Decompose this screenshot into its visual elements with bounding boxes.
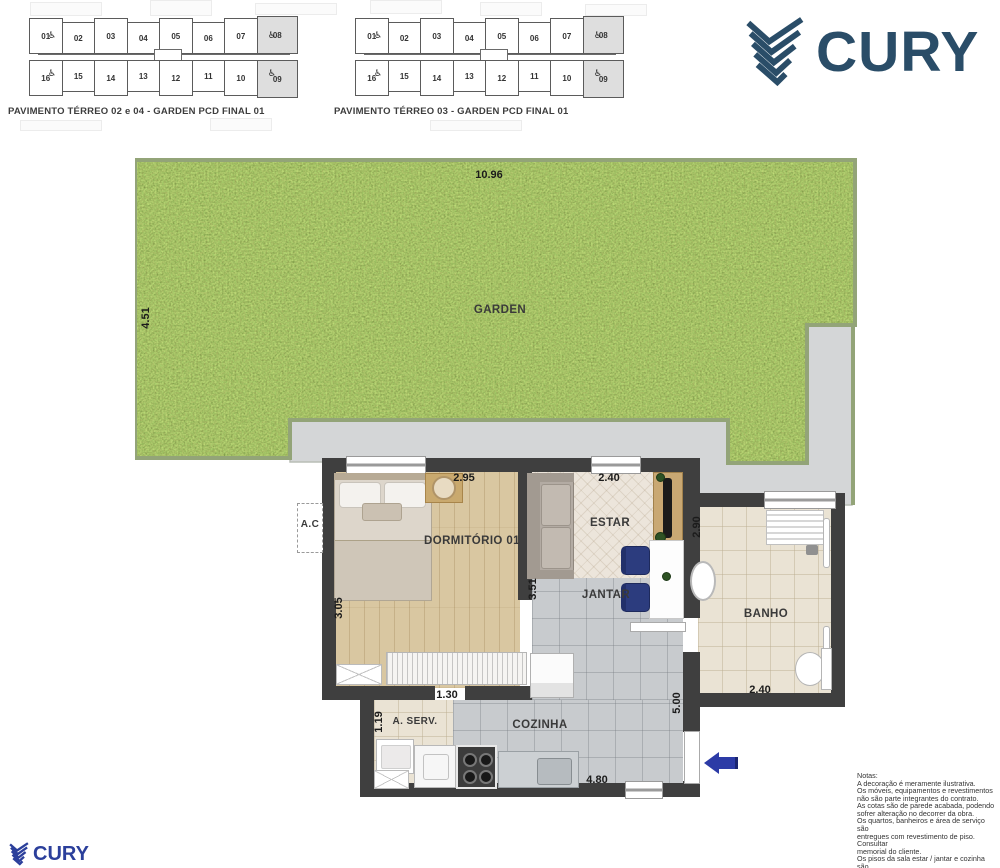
washer-lid: [423, 754, 449, 780]
dining-chair: [621, 546, 650, 575]
floor-plan-page: 0102030405060708 1615141312111009 ♿ ♿ ♿ …: [0, 0, 1000, 868]
bed-headboard: [334, 473, 432, 480]
note-line: entregues com revestimento de piso. Cons…: [857, 833, 997, 848]
aserv-label: A. SERV.: [378, 716, 452, 727]
storage-box: [336, 664, 382, 685]
grab-bar: [823, 518, 830, 568]
entry-arrow-icon: [704, 752, 738, 774]
dim-aserv-depth: 1.19: [373, 702, 385, 742]
dim-cozinha-width: 4.80: [577, 774, 617, 786]
dim-dorm-depth: 3.05: [333, 588, 345, 628]
entry-arrow-head: [704, 752, 719, 774]
accent-pillow: [362, 503, 402, 521]
wall-dorm-bottom-left: [322, 686, 435, 700]
entry-arrow-shaft: [718, 757, 738, 769]
cury-logo-text: CURY: [33, 844, 89, 864]
cury-logo-footer: CURY: [8, 842, 89, 866]
banho-window: [764, 491, 836, 509]
shower-bench: [766, 510, 824, 545]
sofa-cushion: [541, 527, 571, 569]
dim-banho-width: 2.40: [740, 684, 780, 696]
apartment-plan: DORMITÓRIO 01 ESTAR JANTAR BANHO COZINHA…: [0, 0, 1000, 868]
dim-estar-width: 2.40: [589, 472, 629, 484]
dim-banho-depth: 2.90: [691, 507, 703, 547]
cozinha-window: [625, 781, 663, 799]
entry-door: [684, 731, 700, 784]
storage-box: [374, 770, 409, 789]
banho-label: BANHO: [724, 608, 808, 620]
sofa-cushion: [541, 484, 571, 526]
washbasin: [690, 561, 716, 601]
burner: [479, 753, 493, 767]
burner: [463, 770, 477, 784]
laundry-tank: [376, 739, 414, 774]
shower-fixture: [806, 545, 818, 555]
bed-blanket: [335, 540, 431, 600]
cury-logo-mark-icon: [8, 842, 30, 866]
wall-right-mid: [683, 652, 700, 732]
fridge: [530, 653, 574, 698]
dormitorio-window: [346, 456, 426, 474]
legal-notes: Notas:A decoração é meramente ilustrativ…: [857, 772, 997, 868]
burner: [479, 770, 493, 784]
wall-banho-right: [831, 493, 845, 707]
cozinha-label: COZINHA: [496, 719, 584, 731]
table-plant: [662, 572, 671, 581]
tv: [663, 478, 672, 538]
dim-sala-depth: 3.51: [527, 569, 539, 609]
dim-aserv-width: 1.30: [427, 689, 467, 701]
note-line: Os quartos, banheiros e área de serviço …: [857, 817, 997, 832]
laundry-tank-basin: [381, 745, 411, 769]
burner: [463, 753, 477, 767]
dormitorio-label: DORMITÓRIO 01: [398, 535, 546, 547]
dim-dorm-width: 2.95: [444, 472, 484, 484]
kitchen-sink: [537, 758, 572, 785]
kitchen-counter: [498, 751, 579, 788]
note-line: Os pisos da sala estar / jantar e cozinh…: [857, 855, 997, 868]
toilet-tank: [821, 648, 832, 690]
sofa-back: [527, 473, 540, 579]
jantar-label: JANTAR: [568, 589, 644, 601]
estar-label: ESTAR: [574, 517, 646, 529]
wardrobe: [386, 652, 527, 685]
plant: [656, 473, 665, 482]
stove: [456, 745, 497, 789]
sofa-armrest: [527, 473, 574, 482]
dim-cozinha-depth: 5.00: [671, 683, 683, 723]
wall-aserv-left: [360, 693, 374, 797]
banho-door: [630, 622, 686, 632]
wall-dorm-bottom-right: [465, 686, 532, 700]
ac-label: A.C: [296, 519, 324, 530]
washing-machine: [414, 745, 456, 788]
